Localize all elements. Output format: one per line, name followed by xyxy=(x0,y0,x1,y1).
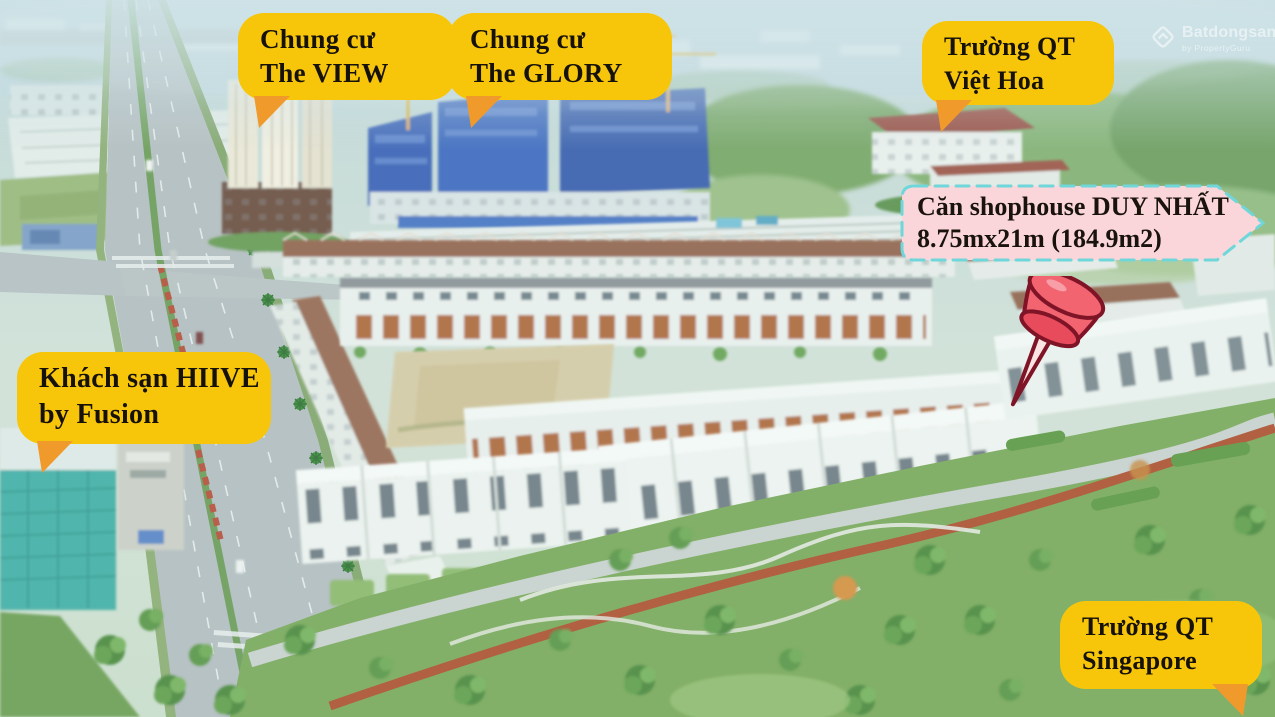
callout-truong-qt-viet-hoa: Trường QT Việt Hoa xyxy=(922,21,1114,105)
callout-line-2: The GLORY xyxy=(470,56,662,90)
callout-line-1: Trường QT xyxy=(944,30,1104,64)
callout-truong-qt-singapore: Trường QT Singapore xyxy=(1060,601,1262,689)
callout-line-2: Việt Hoa xyxy=(944,64,1104,98)
highlight-line-1: Căn shophouse DUY NHẤT xyxy=(917,191,1229,223)
batdongsan-logo-icon xyxy=(1150,24,1176,50)
watermark-brand: Batdongsan xyxy=(1182,24,1275,41)
aerial-promo-image: Chung cư The VIEW Chung cư The GLORY Trư… xyxy=(0,0,1275,717)
callout-line-2: Singapore xyxy=(1082,644,1252,678)
pushpin-icon xyxy=(983,276,1113,418)
callout-khach-san-hiive: Khách sạn HIIVE by Fusion xyxy=(17,352,271,444)
callout-line-2: by Fusion xyxy=(39,397,261,433)
callout-line-1: Chung cư xyxy=(470,22,662,56)
callout-line-1: Chung cư xyxy=(260,22,446,56)
callout-line-2: The VIEW xyxy=(260,56,446,90)
callout-line-1: Trường QT xyxy=(1082,610,1252,644)
highlight-line-2: 8.75mx21m (184.9m2) xyxy=(917,223,1229,255)
callout-shophouse-highlight: Căn shophouse DUY NHẤT 8.75mx21m (184.9m… xyxy=(897,182,1269,264)
callout-chung-cu-the-glory: Chung cư The GLORY xyxy=(448,13,672,100)
watermark-batdongsan: Batdongsancom.vn by PropertyGuru xyxy=(1150,24,1275,53)
callout-chung-cu-the-view: Chung cư The VIEW xyxy=(238,13,456,100)
callout-line-1: Khách sạn HIIVE xyxy=(39,361,261,397)
watermark-tagline: by PropertyGuru xyxy=(1182,44,1275,53)
